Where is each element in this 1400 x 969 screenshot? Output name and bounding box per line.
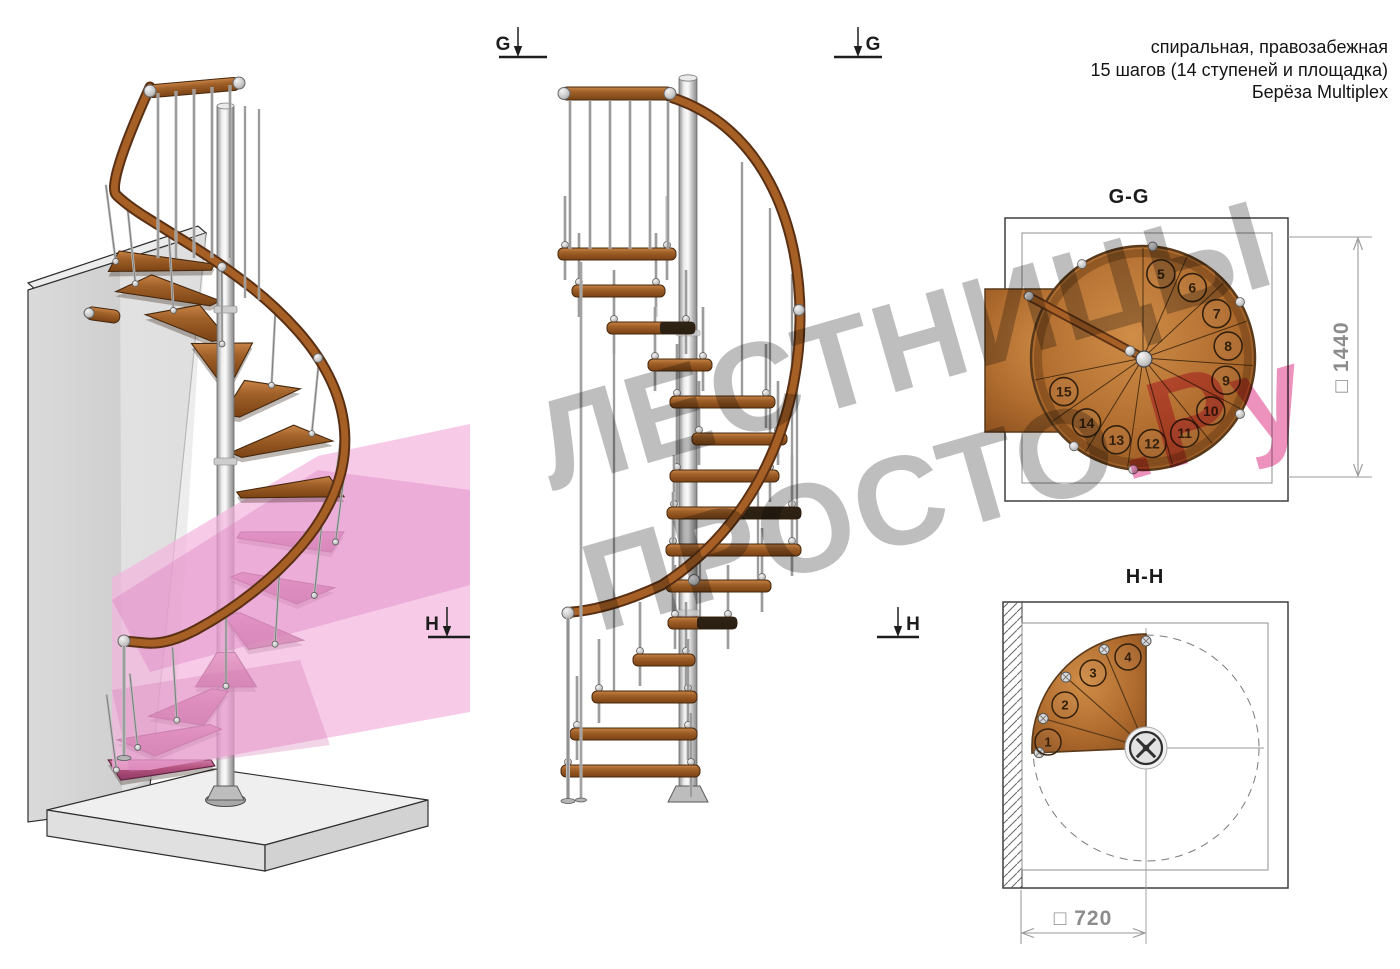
connector-ball <box>688 759 695 766</box>
elevation-view <box>558 75 805 804</box>
connector-ball <box>763 390 770 397</box>
connector-ball <box>789 538 796 545</box>
elevation-step-dark-end <box>697 617 737 629</box>
connector-ball <box>223 683 229 689</box>
marker-letter: H <box>906 614 920 635</box>
newel-foot <box>117 756 131 761</box>
step-number: 10 <box>1203 403 1219 419</box>
connector-ball <box>333 539 339 545</box>
column-cap-top-view <box>1136 351 1152 367</box>
connector-ball <box>759 574 766 581</box>
section-marker-g-right: G <box>834 27 882 57</box>
dimension-720-label: □ 720 <box>1054 907 1113 930</box>
section-marker-h-right: H <box>877 607 920 637</box>
elevation-top-railing <box>558 87 676 249</box>
spec-line-steps: 15 шагов (14 ступеней и площадка) <box>1090 59 1388 82</box>
connector-ball <box>311 592 317 598</box>
connector-ball <box>696 427 703 434</box>
rail-sleeve <box>314 354 323 363</box>
connector-ball <box>683 316 690 323</box>
elevation-step <box>592 691 697 703</box>
elevation-step <box>666 544 801 556</box>
drawing-canvas: G-G 56789101112131415 □ 1440 H-H <box>0 0 1400 969</box>
column-cap-hh <box>1130 732 1162 764</box>
connector-ball <box>272 641 278 647</box>
step-number: 1 <box>1044 735 1051 750</box>
dimension-720: □ 720 <box>1021 890 1146 944</box>
baluster-rod-core <box>272 306 276 385</box>
step-number: 3 <box>1089 666 1096 681</box>
step-number: 8 <box>1224 338 1232 354</box>
connector-ball <box>674 390 681 397</box>
connector-ball <box>1148 242 1157 251</box>
connector-ball <box>135 744 141 750</box>
connector-ball <box>269 382 275 388</box>
connector-ball <box>219 341 225 347</box>
connector-ball <box>1129 465 1138 474</box>
step-number: 5 <box>1157 266 1165 282</box>
connector-ball <box>113 258 119 264</box>
step-number: 12 <box>1144 436 1160 452</box>
connector-ball <box>653 279 660 286</box>
plan-view-hh: H-H 1234 □ 720 <box>1003 566 1288 944</box>
step-number: 9 <box>1222 372 1230 388</box>
connector-ball <box>725 611 732 618</box>
plan-gg-title: G-G <box>1109 186 1150 208</box>
connector-ball <box>1235 298 1244 307</box>
connector-ball <box>574 722 581 729</box>
step-number: 6 <box>1188 280 1196 296</box>
connector-ball <box>596 685 603 692</box>
elevation-step <box>648 359 712 371</box>
perspective-view <box>28 77 470 871</box>
plan-hh-title: H-H <box>1126 566 1165 588</box>
step-number: 11 <box>1177 425 1192 441</box>
connector-ball <box>170 307 176 313</box>
step-number: 14 <box>1079 415 1095 431</box>
technical-drawing-page: G-G 56789101112131415 □ 1440 H-H <box>0 0 1400 969</box>
elevation-steps <box>558 248 801 777</box>
step-number: 2 <box>1061 698 1068 713</box>
connector-ball <box>562 242 569 249</box>
wall-hatch <box>1003 602 1022 888</box>
spec-text-block: спиральная, правозабежная 15 шагов (14 с… <box>1090 36 1388 104</box>
step-number: 4 <box>1124 650 1132 665</box>
plan-view-gg: G-G 56789101112131415 □ 1440 <box>985 186 1372 501</box>
step-number: 15 <box>1056 384 1072 400</box>
step-number: 13 <box>1109 432 1125 448</box>
elevation-step <box>670 396 775 408</box>
spec-line-material: Берёза Multiplex <box>1090 81 1388 104</box>
connector-ball <box>309 431 315 437</box>
connector-ball <box>174 717 180 723</box>
elevation-step-dark-end <box>660 322 695 334</box>
rail-end-cap <box>118 635 130 647</box>
connector-ball <box>132 281 138 287</box>
marker-letter: H <box>425 614 439 635</box>
connector-ball <box>652 353 659 360</box>
dimension-1440: □ 1440 <box>1288 237 1372 477</box>
elevation-step <box>666 580 771 592</box>
elevation-step <box>570 728 697 740</box>
connector-ball <box>637 648 644 655</box>
dimension-1440-label: □ 1440 <box>1330 321 1353 392</box>
marker-letter: G <box>496 34 511 55</box>
marker-letter: G <box>866 34 881 55</box>
elevation-step <box>572 285 665 297</box>
connector-ball <box>672 611 679 618</box>
connector-ball <box>1070 442 1079 451</box>
elevation-step <box>558 248 676 260</box>
connector-ball <box>113 767 119 773</box>
spec-line-type: спиральная, правозабежная <box>1090 36 1388 59</box>
rail-sleeve <box>218 263 227 272</box>
step-number: 7 <box>1213 306 1221 322</box>
connector-ball <box>611 316 618 323</box>
connector-ball <box>700 353 707 360</box>
connector-ball <box>1235 410 1244 419</box>
section-marker-g-left: G <box>496 27 547 57</box>
connector-ball <box>1078 260 1087 269</box>
elevation-step-dark-end <box>740 507 801 519</box>
elevation-step <box>633 654 695 666</box>
